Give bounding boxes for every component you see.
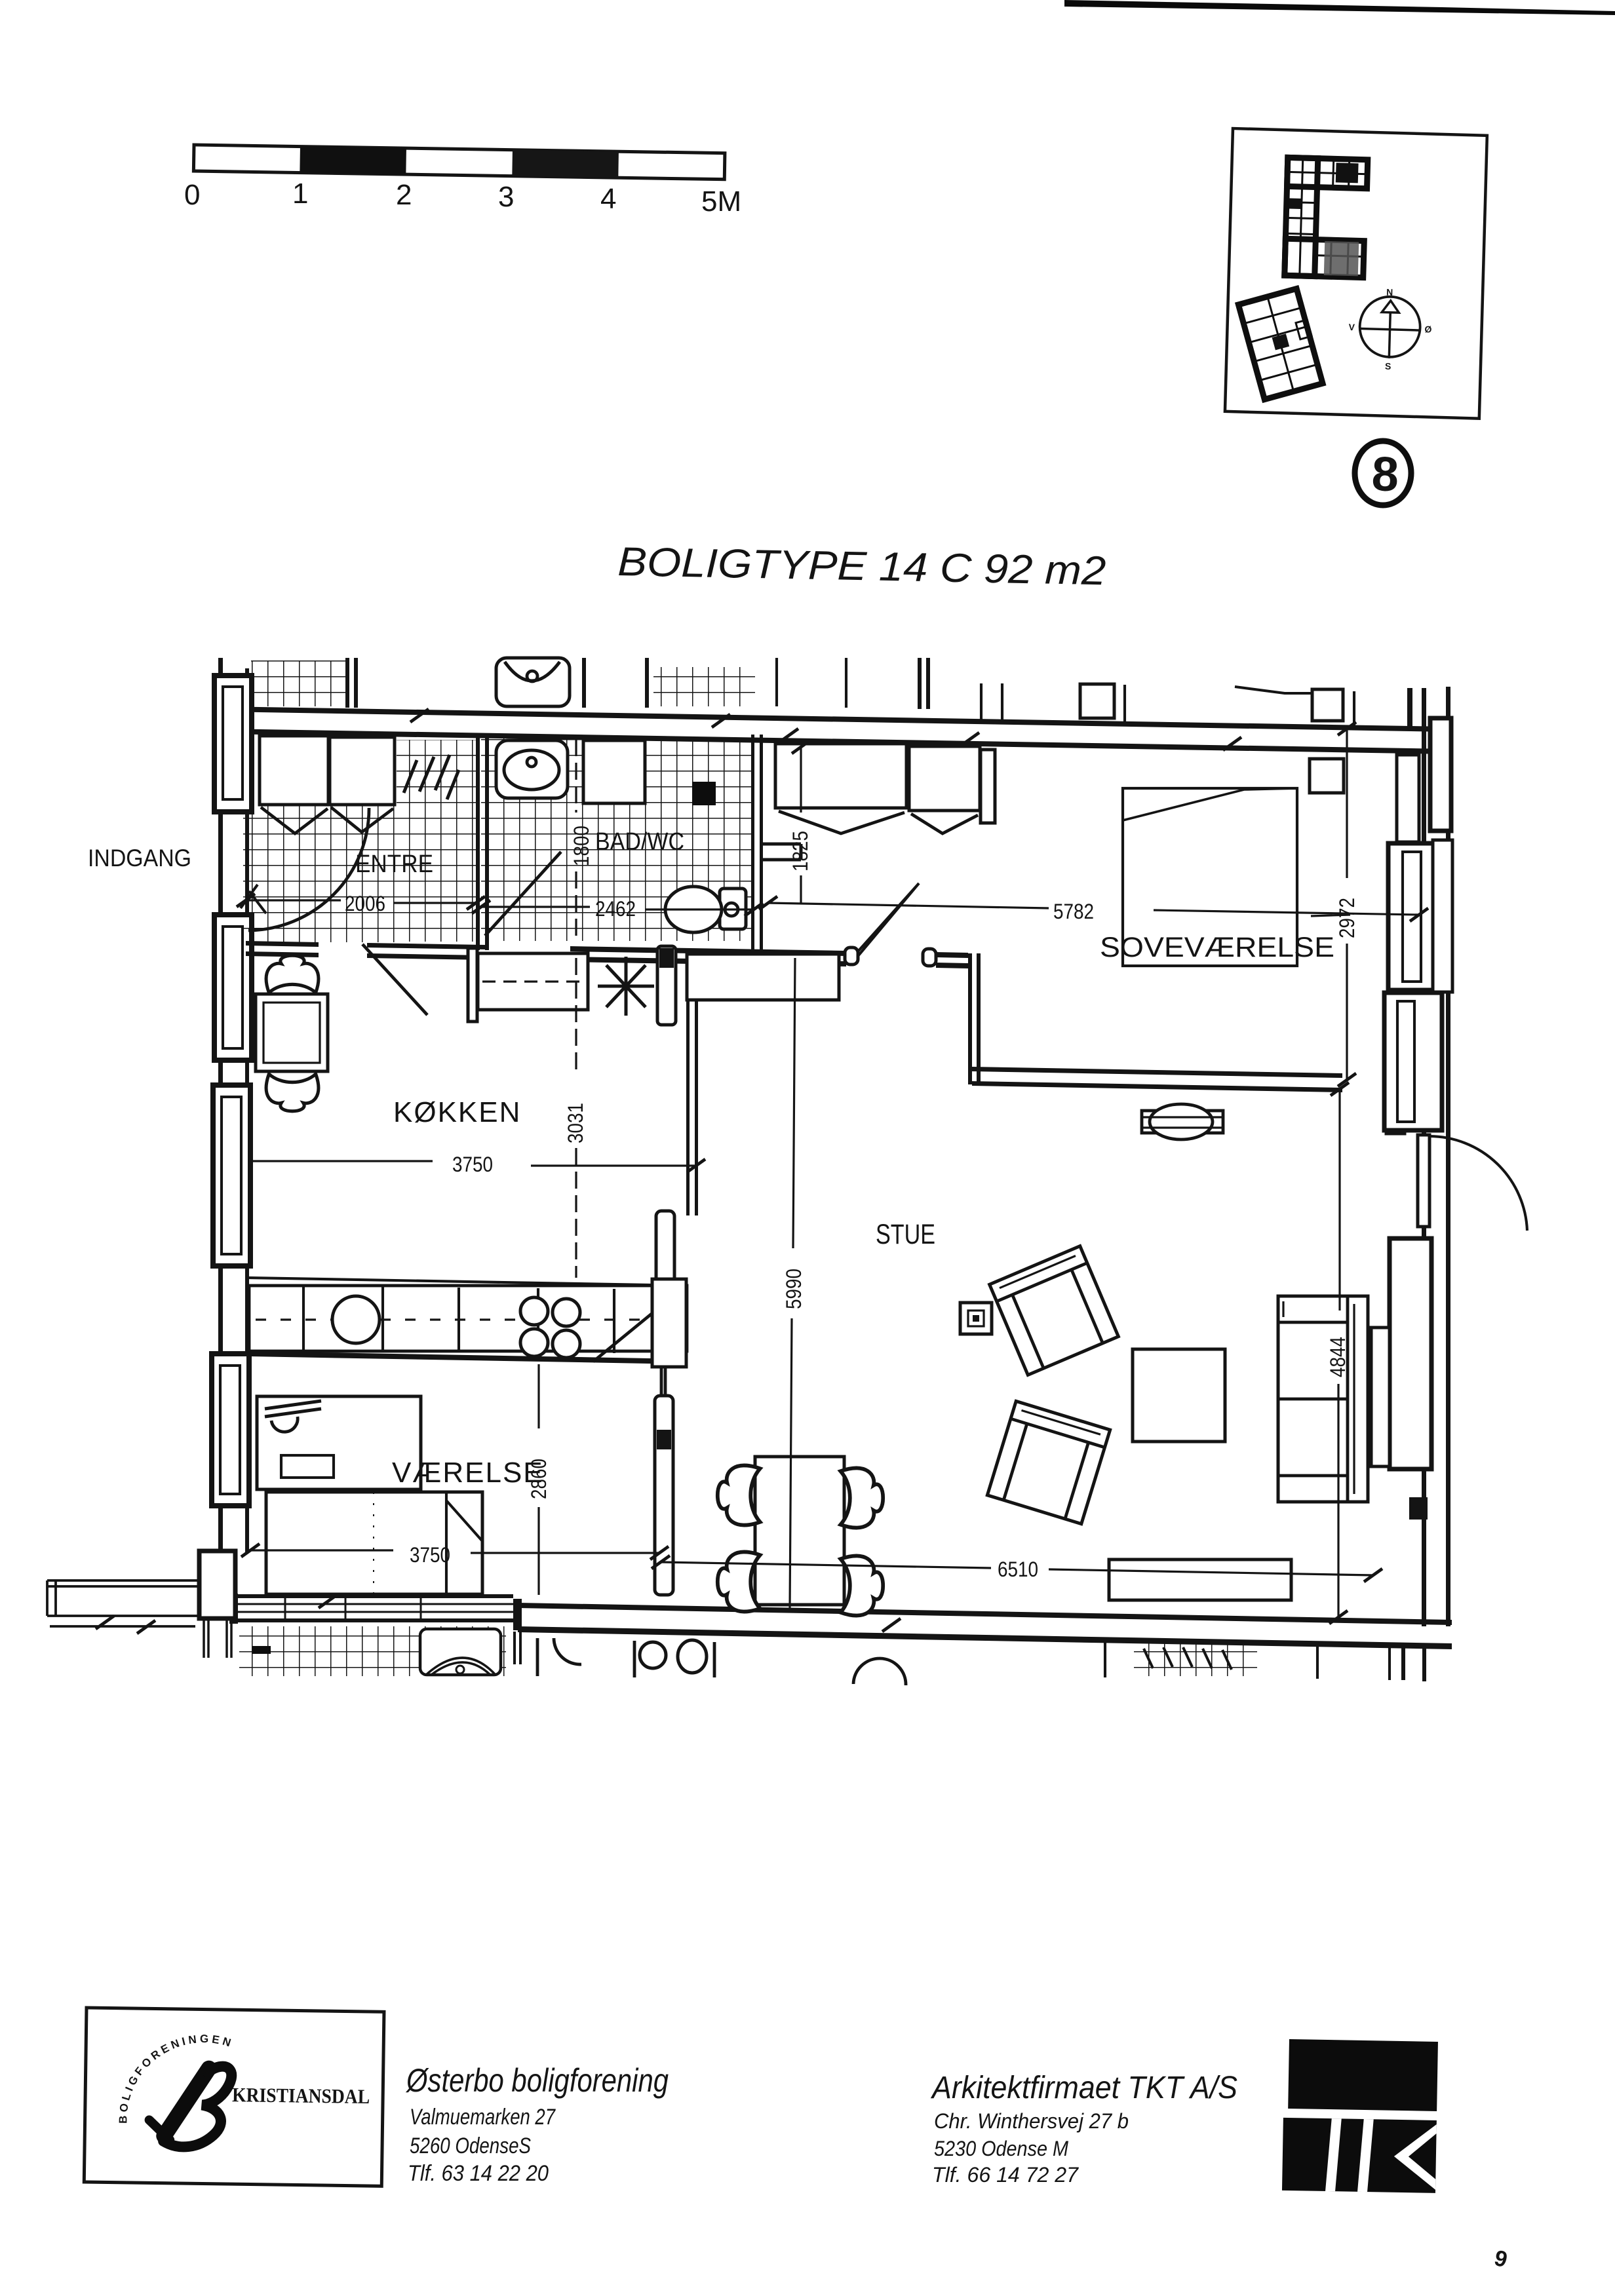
svg-text:2972: 2972 xyxy=(1335,898,1359,938)
svg-text:VÆRELSE: VÆRELSE xyxy=(392,1457,544,1489)
svg-text:V: V xyxy=(1348,322,1355,332)
svg-text:Valmuemarken 27: Valmuemarken 27 xyxy=(410,2105,556,2130)
svg-text:SOVEVÆRELSE: SOVEVÆRELSE xyxy=(1100,932,1334,963)
svg-text:4: 4 xyxy=(600,183,616,215)
svg-text:3750: 3750 xyxy=(452,1153,493,1176)
svg-text:Tlf. 66 14 72 27: Tlf. 66 14 72 27 xyxy=(932,2163,1079,2187)
svg-text:Arkitektfirmaet TKT A/S: Arkitektfirmaet TKT A/S xyxy=(930,2071,1237,2105)
svg-text:2462: 2462 xyxy=(595,897,636,921)
svg-text:STUE: STUE xyxy=(876,1219,935,1250)
svg-text:Østerbo boligforening: Østerbo boligforening xyxy=(405,2062,669,2099)
svg-text:2860: 2860 xyxy=(527,1459,551,1499)
svg-text:2: 2 xyxy=(396,179,412,211)
svg-text:BAD/WC: BAD/WC xyxy=(595,828,684,856)
svg-text:5M: 5M xyxy=(701,185,741,218)
svg-text:S: S xyxy=(1385,361,1391,372)
svg-text:3750: 3750 xyxy=(410,1543,450,1567)
svg-text:3: 3 xyxy=(498,181,514,213)
svg-text:0: 0 xyxy=(184,179,200,211)
svg-text:INDGANG: INDGANG xyxy=(88,845,191,871)
svg-text:1800: 1800 xyxy=(570,826,593,866)
svg-text:Chr. Winthersvej 27 b: Chr. Winthersvej 27 b xyxy=(934,2109,1129,2133)
svg-text:6510: 6510 xyxy=(998,1558,1038,1581)
svg-text:2006: 2006 xyxy=(345,892,385,915)
svg-text:5230 Odense M: 5230 Odense M xyxy=(934,2137,1068,2160)
svg-text:Tlf. 63 14 22 20: Tlf. 63 14 22 20 xyxy=(408,2161,549,2186)
svg-text:ENTRE: ENTRE xyxy=(355,851,433,878)
svg-text:Ø: Ø xyxy=(1424,324,1431,334)
svg-text:KRISTIANSDAL: KRISTIANSDAL xyxy=(232,2083,370,2108)
svg-text:KØKKEN: KØKKEN xyxy=(393,1096,521,1128)
svg-text:5260 OdenseS: 5260 OdenseS xyxy=(410,2133,531,2158)
svg-text:5990: 5990 xyxy=(782,1269,806,1309)
svg-text:5782: 5782 xyxy=(1053,900,1094,923)
svg-text:8: 8 xyxy=(1371,446,1399,501)
svg-text:N: N xyxy=(1386,287,1393,297)
svg-text:1825: 1825 xyxy=(788,831,812,871)
svg-text:BOLIGTYPE 14 C 92 m2: BOLIGTYPE 14 C 92 m2 xyxy=(617,539,1106,594)
svg-text:1: 1 xyxy=(292,178,308,210)
svg-text:3031: 3031 xyxy=(564,1103,587,1143)
svg-text:4844: 4844 xyxy=(1326,1337,1350,1377)
